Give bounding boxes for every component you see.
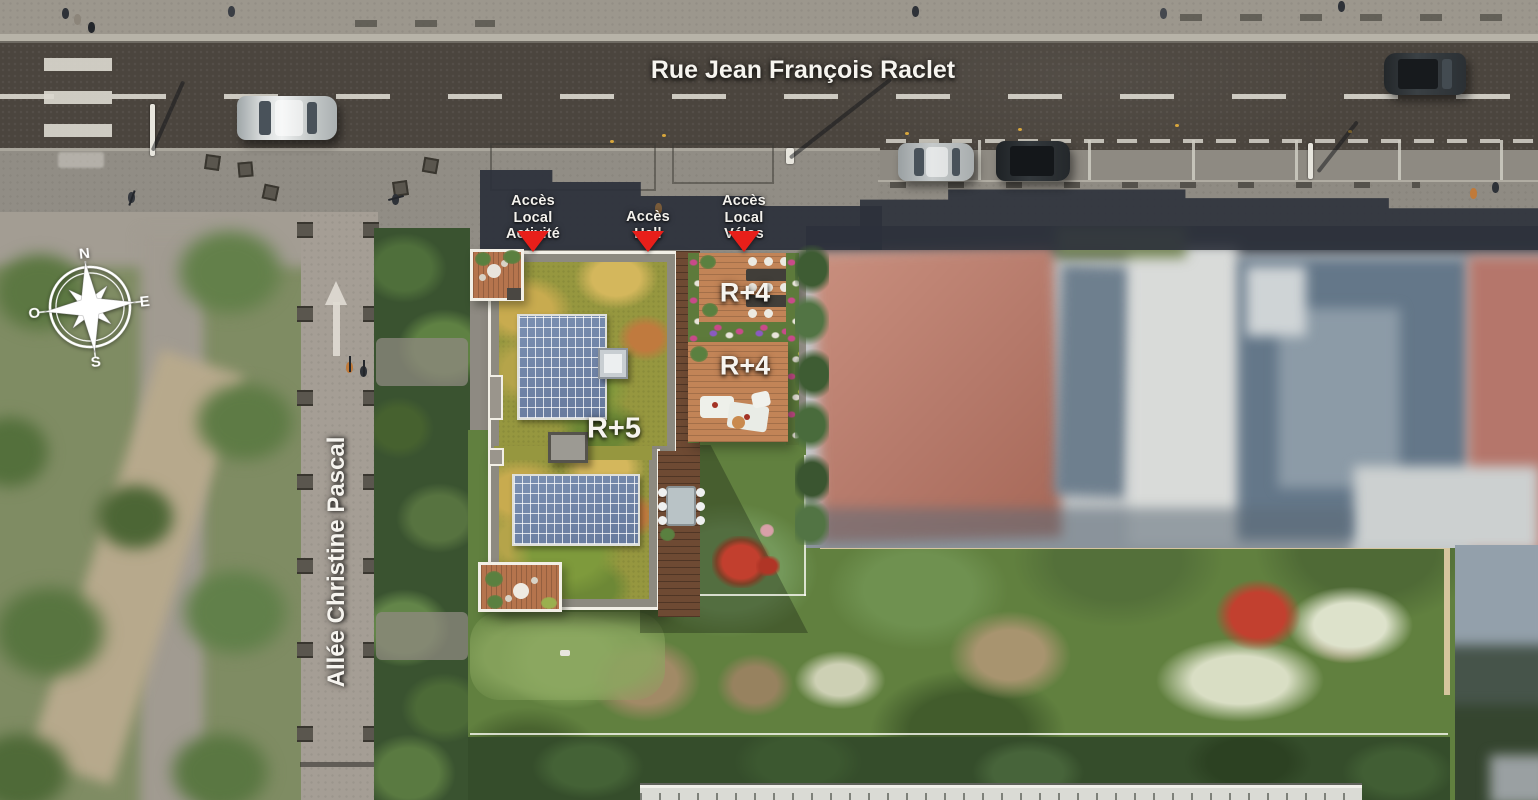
bollard [262, 184, 280, 202]
terrace-chair [764, 309, 773, 318]
pavement-joint [300, 762, 380, 767]
garden-chair [696, 502, 705, 511]
hedge-clearing [376, 612, 468, 660]
direction-arrow-up-head [325, 281, 347, 305]
concrete-area [1354, 466, 1538, 548]
lane-marking [0, 94, 1538, 99]
courtyard [1128, 246, 1238, 546]
terrace-chair [748, 309, 757, 318]
garden-chair [658, 516, 667, 525]
parking-bay-line [1398, 140, 1401, 180]
building-shadow [806, 508, 1351, 548]
curbstone-marks [890, 182, 1420, 188]
pavement-paint-mark [58, 152, 104, 168]
building-level-label-r4-upper: R+4 [720, 278, 770, 309]
bollard-row [297, 222, 313, 800]
curb [0, 34, 1538, 43]
car-driving-dark [1384, 53, 1466, 95]
access-marker-local-activite [517, 231, 549, 252]
potted-plant [541, 597, 557, 609]
concrete-area [1490, 755, 1538, 800]
terrace-table [487, 264, 501, 278]
neighbour-buildings [806, 226, 1538, 548]
pedestrian [1492, 182, 1499, 193]
terrace-chair [748, 257, 757, 266]
parking-bay-line [1295, 140, 1298, 180]
building-level-label-r5: R+5 [587, 413, 641, 446]
fallen-leaves [1175, 124, 1179, 127]
compass-north-label: N [78, 245, 91, 263]
pedestrian [1160, 8, 1167, 19]
bike-rack-marks [1180, 14, 1520, 21]
potted-plant [503, 250, 521, 264]
street-name-label: Rue Jean François Raclet [651, 56, 955, 85]
garden-chair [658, 502, 667, 511]
coffee-table [732, 416, 745, 429]
solar-panel-array [517, 314, 607, 420]
parking-bay-line [978, 140, 981, 180]
lawn [470, 612, 665, 700]
terrace-chair [505, 595, 512, 602]
terrace-chair [764, 257, 773, 266]
pedestrian [912, 6, 919, 17]
roof-equipment-box [548, 432, 588, 463]
car-driving-silver [237, 96, 337, 140]
bollard [204, 154, 221, 171]
direction-arrow-up [333, 302, 340, 356]
terrace-chair [531, 577, 538, 584]
garden-chair [658, 488, 667, 497]
compass-east-label: E [139, 293, 151, 311]
flower-bed [688, 322, 798, 342]
parking-bay-line [1192, 140, 1195, 180]
roof-terrace-nw [470, 249, 524, 301]
pavement-panel [672, 143, 774, 184]
pink-shrub [760, 524, 774, 537]
tree-row [795, 245, 829, 545]
lounge-chair [751, 390, 772, 408]
potted-plant [487, 595, 503, 609]
red-flowering-shrub [756, 556, 780, 576]
person-on-lawn [560, 650, 570, 656]
bollard [422, 157, 439, 174]
fallen-leaves [662, 134, 666, 137]
potted-plant [475, 252, 491, 266]
alley-name-label: Allée Christine Pascal [323, 437, 351, 688]
facade-notch [488, 375, 503, 420]
facade-notch [488, 448, 504, 466]
cushion [744, 414, 750, 420]
red-roof-house [814, 247, 1062, 543]
door-mat [507, 288, 521, 300]
pedestrian [228, 6, 235, 17]
potted-plant [702, 303, 718, 317]
bike-rack-marks [355, 20, 495, 27]
fallen-leaves [905, 132, 909, 135]
parking-bay-line [1500, 140, 1503, 180]
garden-dining-table [666, 486, 696, 526]
skylight [598, 348, 628, 379]
compass-rose: N E S O [22, 239, 158, 375]
potted-plant [700, 255, 716, 269]
hedge [374, 228, 470, 800]
south-building-edge [640, 783, 1362, 800]
garden-chair [696, 488, 705, 497]
neighbour-parcel [1455, 545, 1538, 800]
pedestrian [1338, 1, 1345, 12]
terrace-table [513, 583, 529, 599]
garden-border [1444, 545, 1450, 695]
bicycle [349, 356, 351, 372]
crosswalk [44, 58, 112, 153]
building-level-label-r4-lower: R+4 [720, 351, 770, 382]
fallen-leaves [1018, 128, 1022, 131]
car-parked-gray [898, 143, 974, 181]
property-line [470, 733, 1448, 735]
potted-plant [690, 346, 708, 362]
parking-bay-line [1088, 140, 1091, 180]
car-parked-black [996, 141, 1070, 181]
access-marker-hall [632, 231, 664, 252]
hedge-clearing [376, 338, 468, 386]
cushion [712, 402, 718, 408]
potted-plant [485, 571, 503, 587]
gray-roof [1054, 265, 1134, 497]
compass-main-star [39, 256, 140, 357]
roof-structure [1246, 266, 1306, 336]
pedestrian [88, 22, 95, 33]
compass-west-label: O [28, 304, 42, 322]
street-lamp [1308, 143, 1313, 179]
parking-lane-marking [886, 139, 1538, 143]
bollard [237, 161, 253, 177]
terrace-chair [479, 274, 486, 281]
roof-terrace-sw [478, 562, 562, 612]
pedestrian [74, 14, 81, 25]
site-plan-aerial: N E S O Rue Jean François Raclet Allée C… [0, 0, 1538, 800]
garden-chair [696, 516, 705, 525]
access-marker-local-velos [728, 231, 760, 252]
bicycle [363, 360, 365, 376]
pedestrian [62, 8, 69, 19]
solar-panel-array [512, 474, 640, 546]
pedestrian [1470, 188, 1477, 199]
shrub [660, 528, 675, 541]
